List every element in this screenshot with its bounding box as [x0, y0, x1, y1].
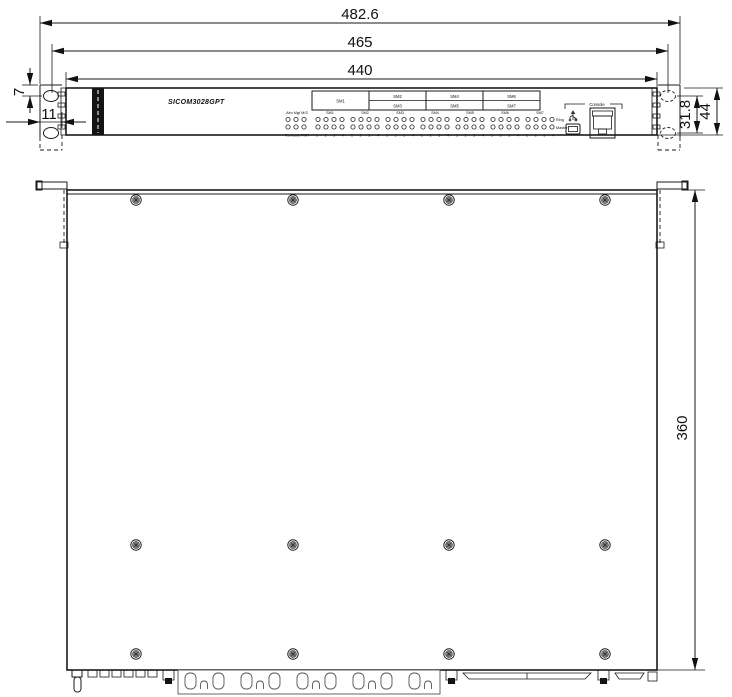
dim-ear-width-label: 11 — [41, 106, 57, 123]
led-group: SM4 1 2 3 4 — [421, 111, 449, 138]
end-bracket — [648, 672, 657, 681]
usb-icon — [569, 111, 577, 121]
dim-hole-spacing-label: 31.8 — [677, 100, 694, 129]
status-led-footer: Run Lock PWR — [285, 134, 309, 138]
front-edge-connectors — [72, 670, 657, 694]
dim-depth-label: 360 — [674, 415, 691, 440]
slot-box-label: SM4 — [450, 94, 459, 99]
screw-icon — [444, 540, 454, 550]
usb-port — [566, 124, 580, 134]
port-slot-block — [178, 670, 440, 694]
cover-screws — [131, 195, 610, 659]
screw-icon — [444, 195, 454, 205]
screw-icon — [600, 649, 610, 659]
slot-box-label: SM3 — [393, 104, 402, 109]
status-led-cluster: Alm Mgt M/S Run Lock PWR — [285, 111, 309, 138]
mounting-clip — [598, 670, 609, 684]
led-group: SM1 1 2 3 4 — [316, 111, 344, 138]
ear-hole — [44, 91, 59, 102]
port-led-groups: SM1 1 2 3 4 SM2 1 2 3 4 SM3 1 2 3 4 SM4 — [316, 111, 554, 138]
ring-label: Ring — [556, 118, 564, 122]
slot-box-label: SM6 — [507, 94, 516, 99]
led-group-label: SM3 — [396, 111, 404, 115]
led-group: SM6 1 2 3 4 — [491, 111, 519, 138]
front-view: 482.6 465 440 — [6, 6, 723, 150]
dim-ear-width: 11 — [6, 106, 86, 128]
led-group: SM5 1 2 3 4 — [456, 111, 484, 138]
vent-bar — [92, 88, 104, 135]
dim-body-width-label: 440 — [347, 62, 372, 79]
led-group: SM3 1 2 3 4 — [386, 111, 414, 138]
led-group-label: SM2 — [361, 111, 369, 115]
led-group-label: SM1 — [326, 111, 334, 115]
grounding-stud — [72, 670, 82, 692]
product-label: SICOM3028GPT — [168, 99, 225, 106]
screw-icon — [131, 195, 141, 205]
blank-plate — [463, 673, 591, 679]
led-group-label: SM4 — [431, 111, 439, 115]
screw-icon — [131, 540, 141, 550]
screw-icon — [288, 649, 298, 659]
console-port — [590, 108, 615, 138]
led-group: SM7 1 2 3 4 — [526, 111, 554, 138]
dimension-drawing: 482.6 465 440 — [0, 0, 732, 697]
dim-body-width: 440 — [66, 62, 657, 87]
top-chassis — [67, 190, 657, 670]
dim-depth: 360 — [657, 190, 705, 670]
dim-ear-hole-offset: 7 — [11, 68, 42, 113]
blank-plate — [615, 673, 644, 679]
status-led-header: Alm Mgt M/S — [286, 111, 308, 115]
screw-icon — [600, 540, 610, 550]
dim-overall-width-label: 482.6 — [341, 6, 379, 23]
mounting-clip — [163, 670, 174, 684]
slot-box-label: SM5 — [450, 104, 459, 109]
screw-icon — [444, 649, 454, 659]
dim-height-label: 44 — [697, 103, 714, 120]
screw-icon — [288, 195, 298, 205]
mounting-clip — [446, 670, 457, 684]
top-view: 360 — [36, 181, 705, 694]
module-slot-boxes: SM1 SM2 SM3 SM4 SM5 SM6 SM7 — [312, 91, 540, 110]
ear-hole — [44, 128, 59, 139]
top-ear-left — [36, 181, 68, 248]
screw-icon — [131, 649, 141, 659]
led-group-label: SM6 — [501, 111, 509, 115]
screw-icon — [600, 195, 610, 205]
led-group-label: SM5 — [466, 111, 474, 115]
dim-ear-offset-label: 7 — [11, 88, 28, 96]
slot-box-label: SM2 — [393, 94, 402, 99]
led-group: SM2 1 2 3 4 — [351, 111, 379, 138]
console-label: Console — [589, 102, 605, 107]
dim-mounting-width-label: 465 — [347, 34, 372, 51]
terminal-block-teeth — [88, 670, 157, 677]
top-ear-right — [656, 181, 688, 248]
screw-icon — [288, 540, 298, 550]
slot-box-label: SM1 — [336, 99, 345, 104]
technical-drawing-page: 482.6 465 440 — [0, 0, 732, 697]
led-group-label: SM7 — [536, 111, 544, 115]
slot-box-label: SM7 — [507, 104, 516, 109]
ear-hole — [661, 128, 676, 139]
